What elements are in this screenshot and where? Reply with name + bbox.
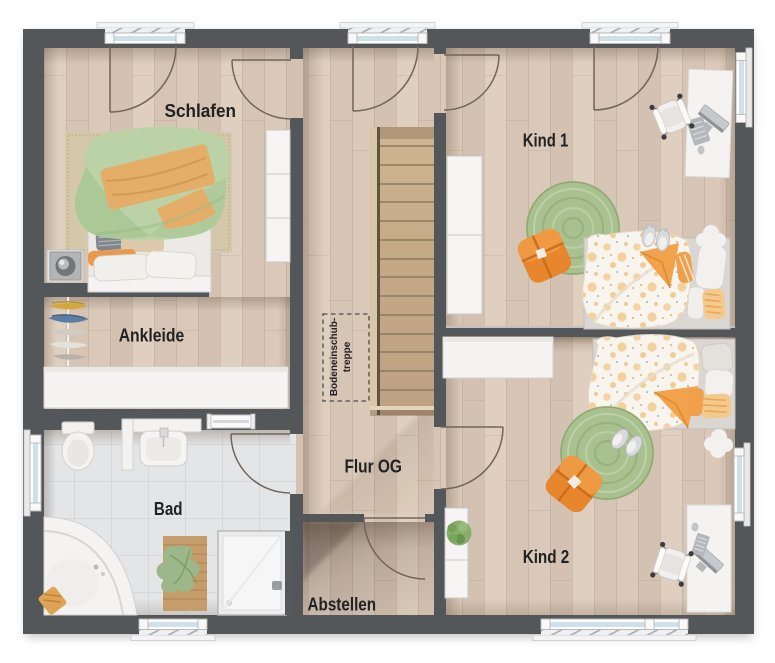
svg-text:Abstellen: Abstellen <box>308 594 377 615</box>
svg-text:Kind 1: Kind 1 <box>523 129 569 150</box>
svg-text:Schlafen: Schlafen <box>165 100 237 121</box>
svg-text:treppe: treppe <box>342 341 353 372</box>
svg-text:Kind 2: Kind 2 <box>523 546 570 567</box>
svg-text:Bad: Bad <box>154 498 183 519</box>
svg-text:Flur OG: Flur OG <box>344 455 402 476</box>
svg-text:Ankleide: Ankleide <box>119 325 185 346</box>
svg-text:Bodeneinschub-: Bodeneinschub- <box>329 318 340 396</box>
